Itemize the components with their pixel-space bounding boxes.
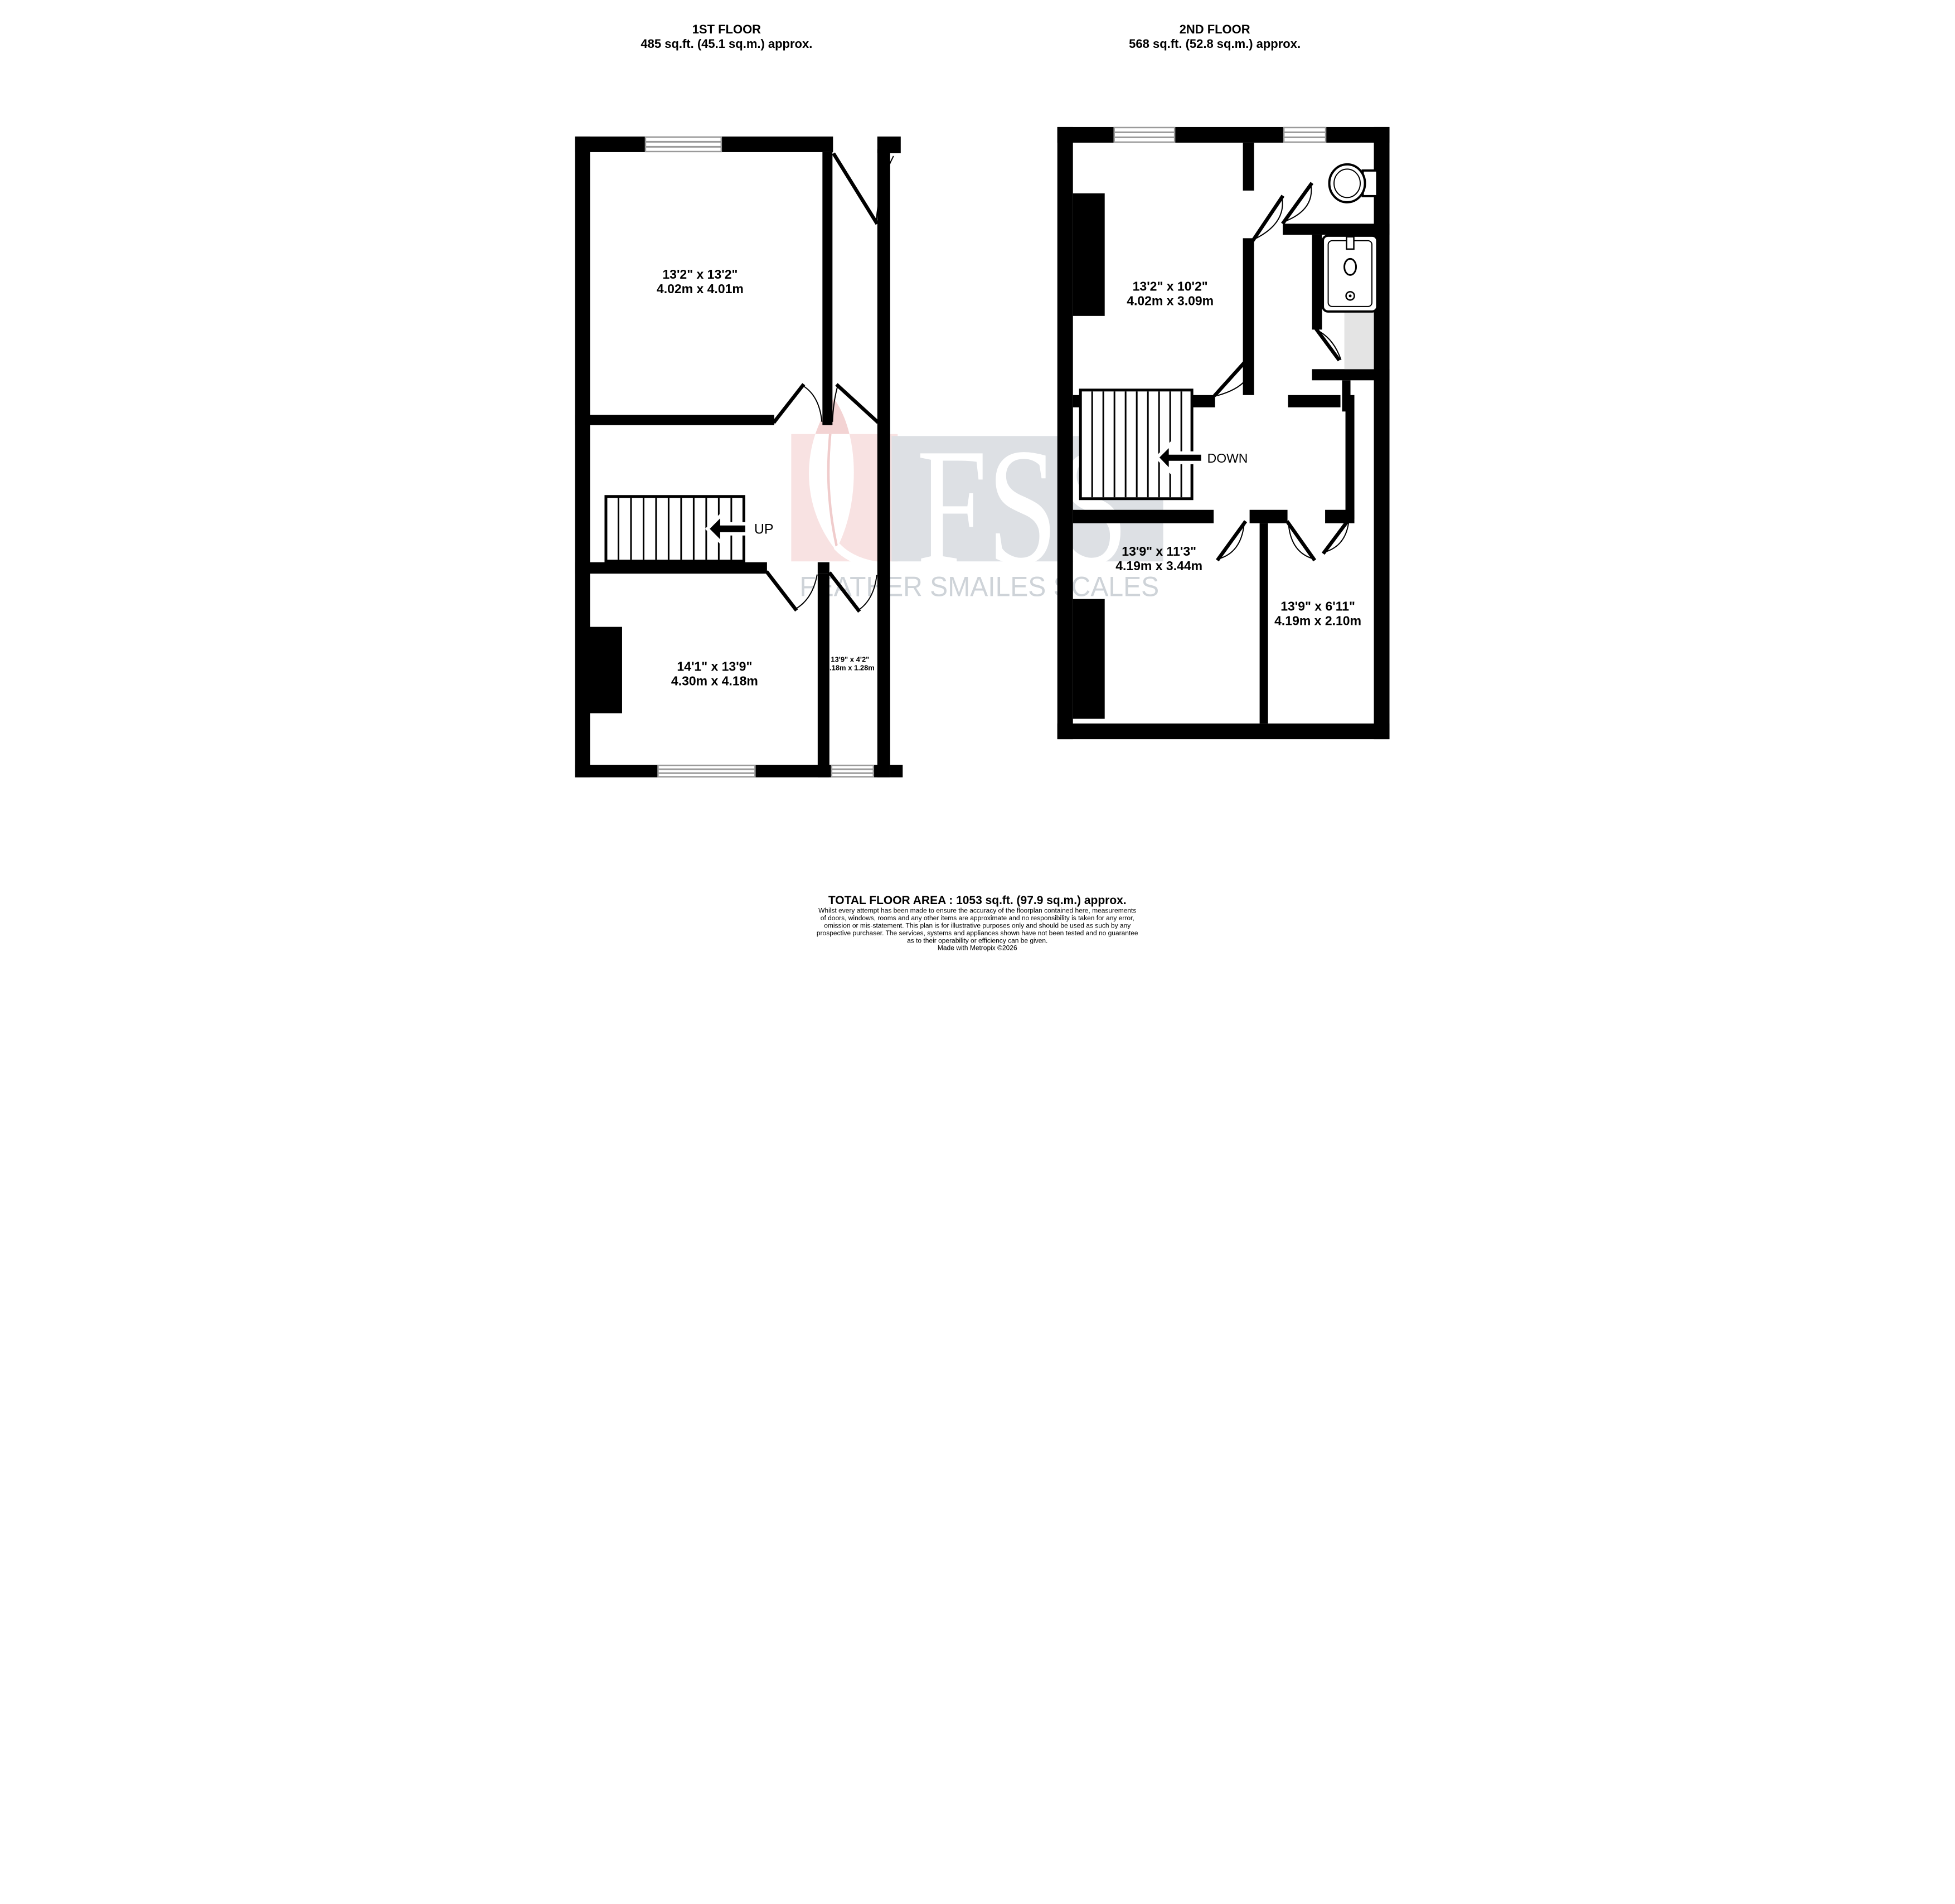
disclaimer-line: of doors, windows, rooms and any other i… [821, 914, 1134, 922]
window [1284, 128, 1326, 142]
window [646, 137, 721, 152]
room-dim-imperial: 13'2" x 10'2" [1133, 279, 1208, 293]
disclaimer-line: prospective purchaser. The services, sys… [817, 929, 1138, 937]
wall [1057, 127, 1073, 739]
wall [890, 765, 903, 777]
wall [877, 137, 901, 153]
wall [575, 562, 767, 574]
header-1st-floor: 1ST FLOOR 485 sq.ft. (45.1 sq.m.) approx… [641, 22, 812, 51]
floor-title: 1ST FLOOR [692, 22, 761, 36]
room-dim-metric: 4.02m x 3.09m [1127, 293, 1214, 308]
room-dim-metric: 4.02m x 4.01m [657, 281, 744, 296]
room-dim-imperial: 13'9" x 4'2" [831, 655, 869, 664]
wall [1260, 523, 1268, 723]
plan-2nd-floor: DOWN 13'2" x 10'2" 4.02m x 3.09m 13'9" x… [1057, 127, 1390, 739]
footer: TOTAL FLOOR AREA : 1053 sq.ft. (97.9 sq.… [817, 894, 1138, 951]
wall [1283, 224, 1389, 235]
room-dim-imperial: 14'1" x 13'9" [677, 659, 752, 674]
window [658, 765, 755, 776]
room-dim-metric: 4.18m x 1.28m [826, 664, 875, 672]
room-dim-imperial: 13'2" x 13'2" [662, 267, 738, 281]
toilet-icon [1330, 164, 1377, 202]
floor-area: 485 sq.ft. (45.1 sq.m.) approx. [641, 37, 812, 51]
chimney-breast [1073, 193, 1105, 316]
room-dim-metric: 4.19m x 2.10m [1274, 614, 1361, 628]
wall [818, 562, 829, 574]
wall [1312, 369, 1390, 380]
wall [822, 152, 832, 425]
watermark-name: FEATHER SMAILES SCALES [799, 571, 1159, 603]
floor-area: 568 sq.ft. (52.8 sq.m.) approx. [1129, 37, 1301, 51]
wall [1342, 380, 1351, 411]
wall [1243, 238, 1254, 395]
disclaimer-line: as to their operability or efficiency ca… [907, 937, 1047, 945]
wall [1057, 723, 1390, 739]
stairs-label: DOWN [1207, 451, 1248, 465]
room-dim-imperial: 13'9" x 6'11" [1280, 599, 1355, 614]
floor-title: 2ND FLOOR [1180, 22, 1250, 36]
total-floor-area: TOTAL FLOOR AREA : 1053 sq.ft. (97.9 sq.… [828, 894, 1127, 907]
wall [1243, 143, 1254, 191]
wall [1288, 395, 1341, 407]
disclaimer-line: omission or mis-statement. This plan is … [824, 922, 1131, 930]
wall [1325, 510, 1354, 523]
chimney-breast [581, 627, 622, 713]
stairs-label: UP [754, 522, 774, 537]
credit-line: Made with Metropix ©2026 [938, 944, 1017, 952]
floorplan-canvas: FSS FEATHER SMAILES SCALES 1ST FLOOR 485… [489, 0, 1466, 952]
window [1114, 128, 1175, 142]
wall [818, 574, 829, 777]
chimney-breast [1073, 599, 1105, 719]
wall [1057, 127, 1390, 143]
disclaimer-line: Whilst every attempt has been made to en… [818, 907, 1136, 915]
wall [575, 415, 774, 425]
wall [877, 149, 890, 778]
stairs-up: UP [606, 497, 774, 561]
sink-icon [1323, 236, 1377, 312]
stairs-down: DOWN [1080, 390, 1248, 499]
window [832, 765, 874, 776]
header-2nd-floor: 2ND FLOOR 568 sq.ft. (52.8 sq.m.) approx… [1129, 22, 1301, 51]
floorplan-page: FSS FEATHER SMAILES SCALES 1ST FLOOR 485… [489, 0, 1466, 952]
room-dim-imperial: 13'9" x 11'3" [1122, 544, 1196, 558]
wall [1250, 510, 1288, 523]
wall [1073, 510, 1214, 523]
wall [1374, 127, 1390, 739]
room-dim-metric: 4.30m x 4.18m [671, 674, 758, 688]
wall [1312, 235, 1322, 329]
wall [1346, 395, 1355, 519]
room-dim-metric: 4.19m x 3.44m [1115, 558, 1202, 573]
